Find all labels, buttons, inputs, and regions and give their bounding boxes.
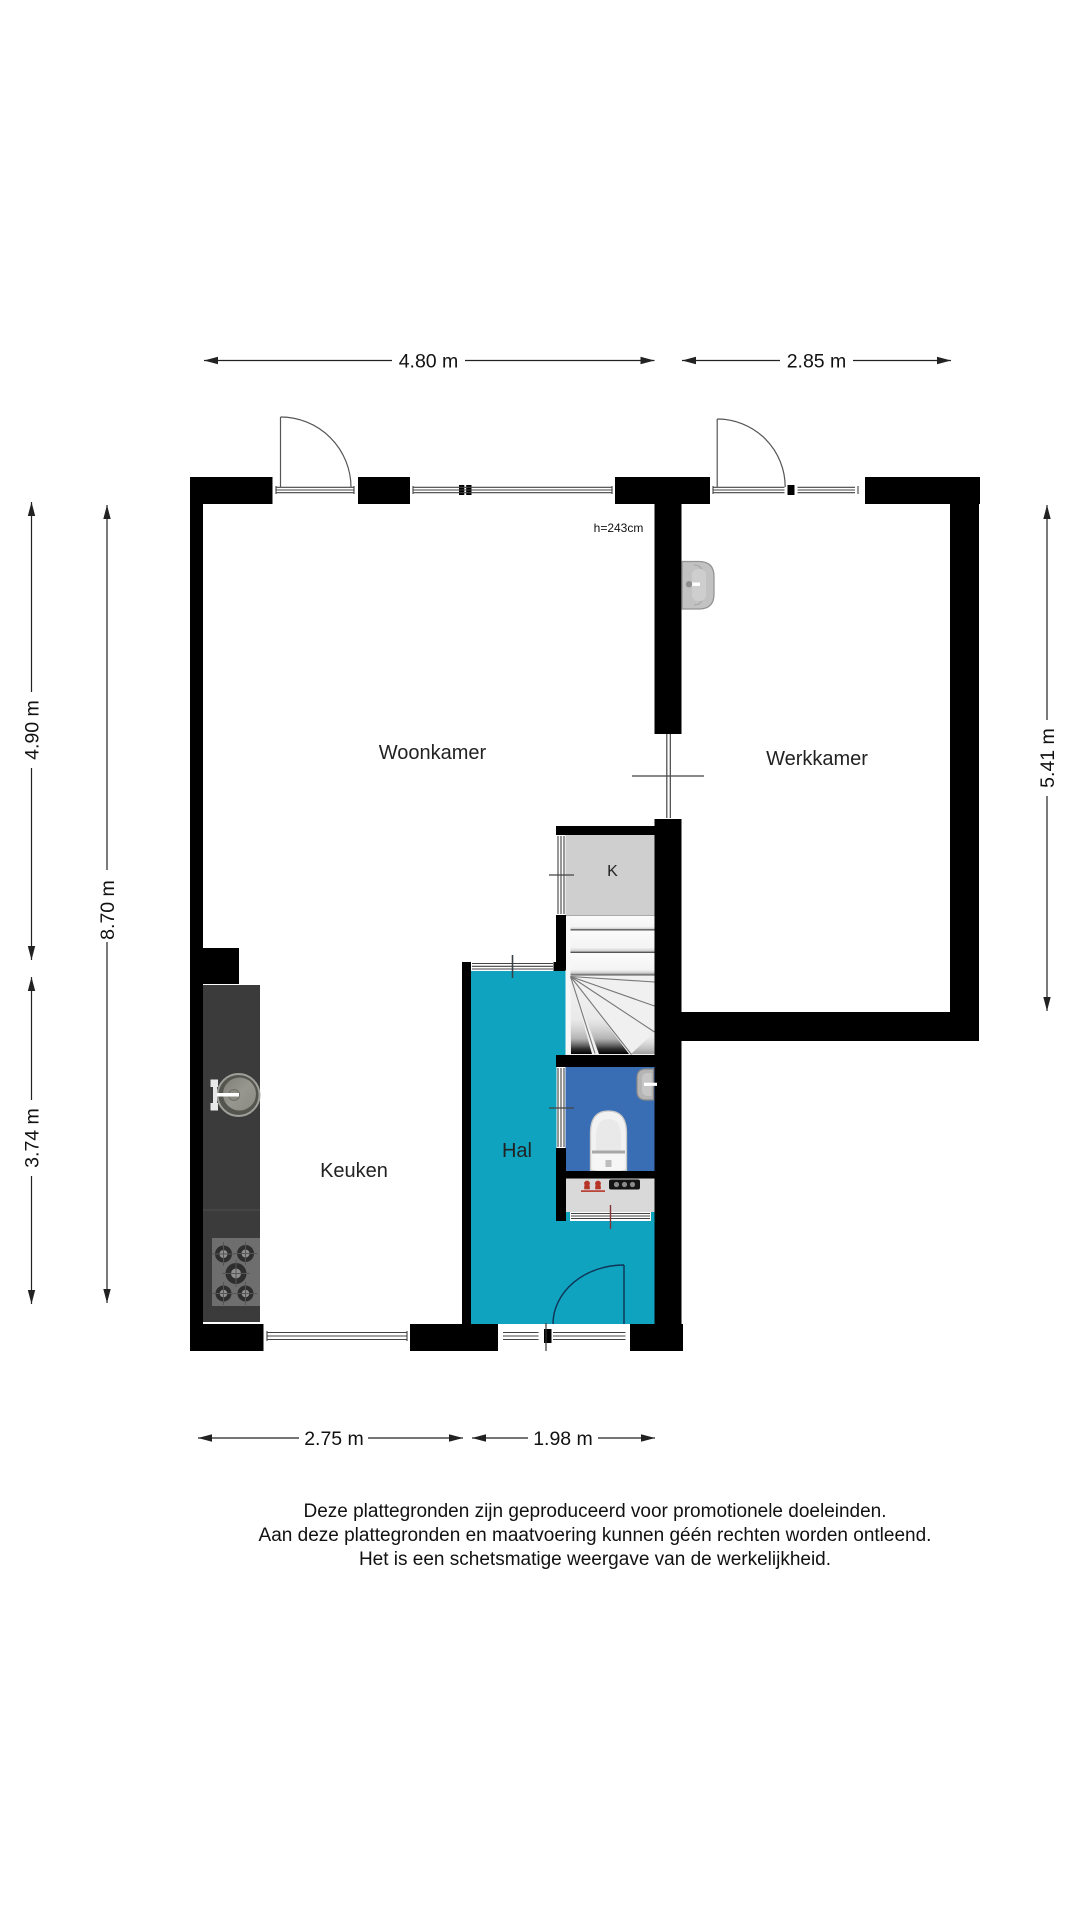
svg-text:8.70 m: 8.70 m: [97, 880, 119, 940]
svg-text:3.74 m: 3.74 m: [22, 1108, 44, 1168]
svg-text:Deze plattegronden zijn geprod: Deze plattegronden zijn geproduceerd voo…: [303, 1501, 886, 1522]
svg-text:Woonkamer: Woonkamer: [379, 742, 487, 764]
svg-text:5.41 m: 5.41 m: [1037, 728, 1059, 788]
svg-text:4.80 m: 4.80 m: [399, 351, 459, 373]
svg-text:4.90 m: 4.90 m: [22, 700, 44, 760]
svg-text:Hal: Hal: [502, 1140, 532, 1162]
svg-text:1.98 m: 1.98 m: [533, 1428, 593, 1450]
svg-text:2.85 m: 2.85 m: [787, 351, 847, 373]
svg-text:Aan deze plattegronden en maat: Aan deze plattegronden en maatvoering ku…: [259, 1525, 932, 1546]
svg-text:h=243cm: h=243cm: [594, 521, 644, 535]
svg-text:Het is een schetsmatige weerga: Het is een schetsmatige weergave van de …: [359, 1549, 831, 1570]
svg-text:Keuken: Keuken: [320, 1160, 388, 1182]
svg-text:K: K: [607, 863, 618, 880]
svg-text:Werkkamer: Werkkamer: [766, 748, 868, 770]
svg-text:2.75 m: 2.75 m: [304, 1428, 364, 1450]
